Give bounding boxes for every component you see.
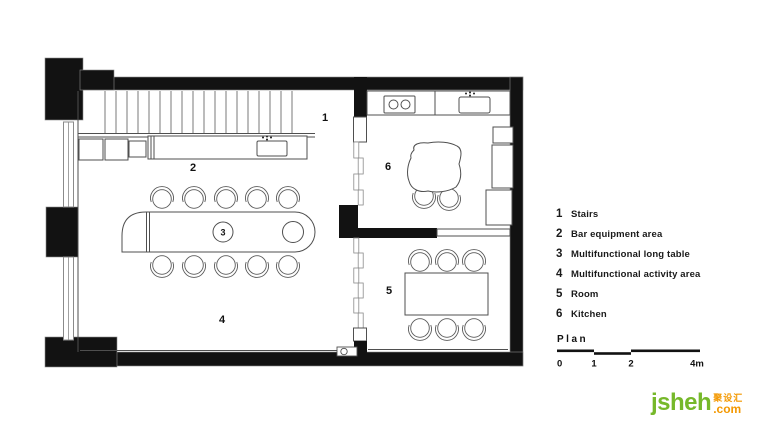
stairs <box>78 91 315 137</box>
kitchen-cabinet <box>493 127 513 143</box>
legend-number: 5 <box>556 288 571 300</box>
kitchen-table-blob <box>408 142 461 192</box>
legend-item: 1 Stairs <box>556 208 700 220</box>
legend: 1 Stairs 2 Bar equipment area 3 Multifun… <box>556 208 700 328</box>
partition-top-black <box>354 77 367 117</box>
bar-equipment-box <box>129 141 146 157</box>
legend-label: Kitchen <box>571 309 607 320</box>
legend-number: 1 <box>556 208 571 220</box>
legend-label: Stairs <box>571 209 598 220</box>
pier-mid-left <box>46 207 78 257</box>
legend-label: Room <box>571 289 599 300</box>
page: 1 2 3 4 5 6 Plan 0 1 2 4m 1 Stairs 2 Bar… <box>0 0 760 427</box>
floor-drain <box>341 348 347 354</box>
wall-room-divider-black <box>339 228 437 238</box>
pier-top-left <box>45 58 83 120</box>
legend-number: 3 <box>556 248 571 260</box>
room-label-4: 4 <box>219 314 226 326</box>
door-jamb-bottom <box>354 328 367 341</box>
room-5 <box>405 250 488 341</box>
wall-top <box>72 77 523 90</box>
legend-item: 4 Multifunctional activity area <box>556 268 700 280</box>
jsheh-logo[interactable]: jsheh 聚设汇 .com <box>651 390 743 416</box>
pier-top-arm <box>80 70 114 90</box>
room-table <box>405 273 488 315</box>
legend-label: Multifunctional activity area <box>571 269 700 280</box>
kitchen-sink <box>459 97 490 113</box>
scale-segment <box>594 352 631 355</box>
legend-label: Bar equipment area <box>571 229 662 240</box>
logo-tld: .com <box>713 403 743 415</box>
scale-bar: Plan 0 1 2 4m <box>557 334 704 370</box>
sliding-door-upper <box>354 142 363 205</box>
long-table <box>122 212 315 252</box>
wall-bottom <box>58 352 523 366</box>
logo-wordmark: jsheh <box>651 390 711 416</box>
scale-tick-4m: 4m <box>690 359 704 370</box>
bar-equipment-box <box>79 139 103 160</box>
door-jamb-top <box>354 117 367 142</box>
scale-tick-2: 2 <box>628 359 633 370</box>
table-end-circle <box>283 222 304 243</box>
scale-segment <box>631 350 700 353</box>
bar-equipment-box <box>105 139 128 160</box>
pier-bottom-left <box>45 337 117 367</box>
kitchen-cabinet <box>492 145 513 188</box>
scale-segment <box>557 350 594 353</box>
scale-title: Plan <box>557 334 588 345</box>
legend-label: Multifunctional long table <box>571 249 690 260</box>
room-label-5: 5 <box>386 285 392 297</box>
room-label-6: 6 <box>385 161 391 173</box>
legend-item: 5 Room <box>556 288 700 300</box>
legend-number: 2 <box>556 228 571 240</box>
room-label-1: 1 <box>322 112 328 124</box>
scale-tick-1: 1 <box>591 359 597 370</box>
legend-item: 2 Bar equipment area <box>556 228 700 240</box>
logo-side: 聚设汇 .com <box>713 393 743 415</box>
legend-item: 3 Multifunctional long table <box>556 248 700 260</box>
wall-room-divider-thin <box>437 229 510 236</box>
bar-sink <box>257 141 287 156</box>
bar-area <box>79 136 307 161</box>
legend-number: 6 <box>556 308 571 320</box>
kitchen-cabinet <box>486 190 512 225</box>
room-label-2: 2 <box>190 162 196 174</box>
stair-treads <box>105 91 292 133</box>
legend-item: 6 Kitchen <box>556 308 700 320</box>
kitchen <box>367 91 513 225</box>
legend-number: 4 <box>556 268 571 280</box>
scale-tick-0: 0 <box>557 359 562 370</box>
room-label-3: 3 <box>220 228 225 238</box>
sliding-door-lower <box>354 238 363 328</box>
